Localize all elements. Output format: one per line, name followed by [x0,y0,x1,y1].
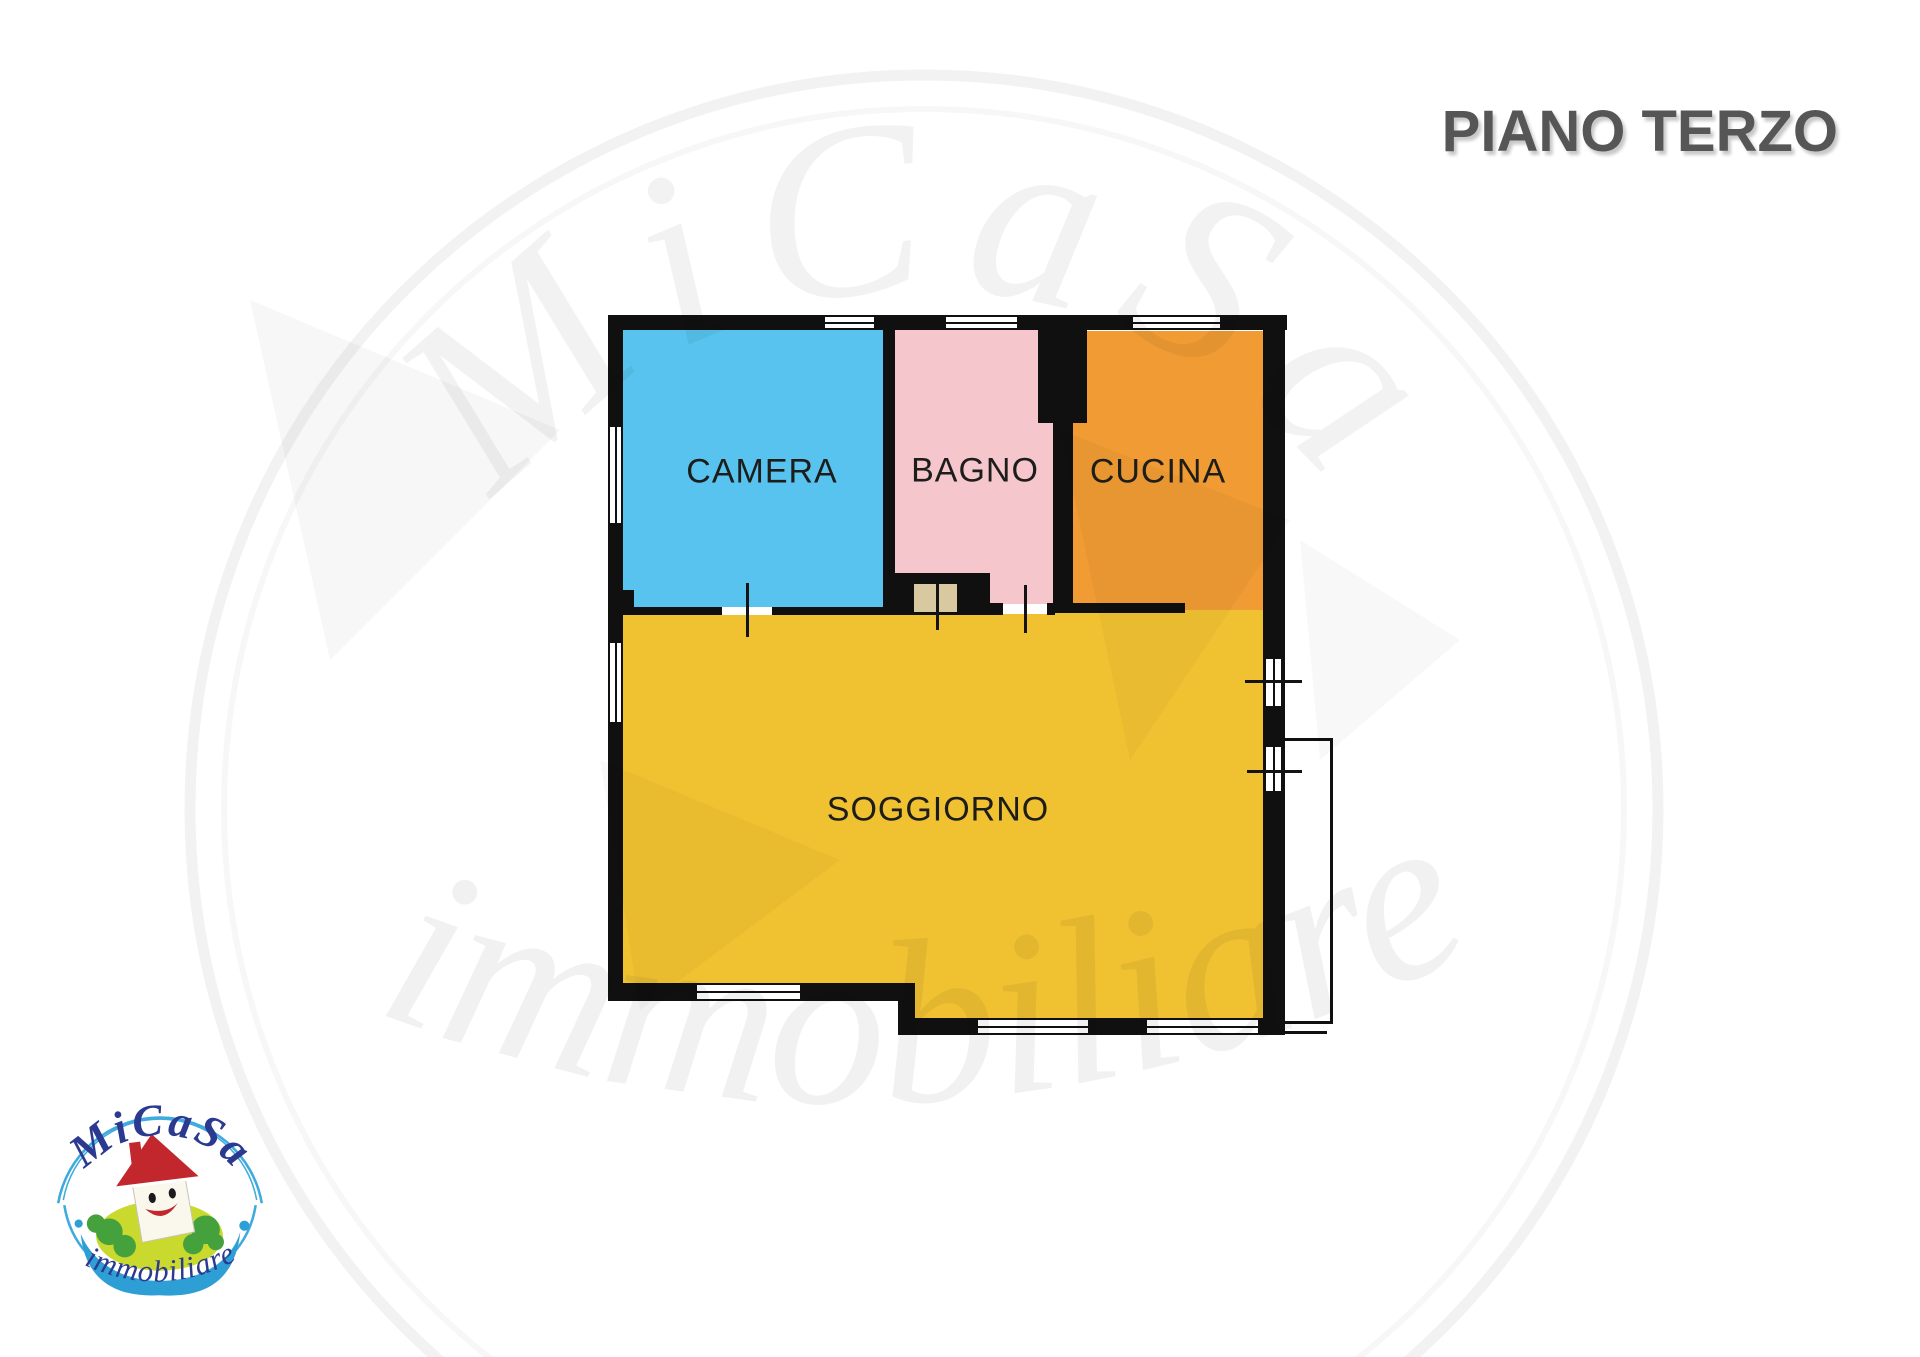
balcony [1281,738,1333,1024]
door-mark-camera-icon [746,583,749,637]
window-left-soggiorno-icon [608,643,623,722]
door-mark-bagno-icon [936,583,939,630]
wall-cucina-soggiorno [1055,603,1185,613]
room-label-camera: CAMERA [686,453,837,492]
terrace-line [1285,1031,1327,1034]
room-label-cucina: CUCINA [1090,453,1226,492]
door-mark-right-upper-icon [1245,680,1302,683]
agency-logo: MiCaSa immobiliare [50,1078,270,1318]
door-mark-right-lower-icon [1247,770,1302,773]
wall-bagno-ext-left [990,603,1003,615]
door-mark-bagno2-icon [1024,585,1027,633]
room-label-bagno: BAGNO [911,452,1039,491]
floor-plan-page: MiCaSa immobiliare CAMERA BAGNO CUCINA S… [0,0,1920,1357]
wall-corner-bump [623,590,634,615]
window-top-bagno-icon [946,315,1017,330]
window-top-camera-icon [825,315,874,330]
window-bottom-left-icon [697,983,800,1001]
wall-bagno-cucina-upper [1038,330,1087,423]
room-soggiorno-area-lower [912,983,1263,1018]
room-bagno-area [895,330,1038,372]
window-left-camera-icon [608,427,623,523]
window-bottom-mid-icon [978,1018,1088,1035]
room-cucina-area-lower [1073,423,1263,610]
logo-splash [75,1220,83,1228]
window-right-lower-icon [1264,745,1283,793]
floor-plan [0,0,1920,1357]
page-title: PIANO TERZO [1442,98,1838,165]
room-cucina-area [1087,331,1263,423]
logo-splash [239,1221,249,1231]
window-bottom-right-icon [1147,1018,1258,1035]
room-label-soggiorno: SOGGIORNO [827,791,1049,830]
wall-bagno-cucina-lower [1053,423,1073,603]
room-bagno-area-ext [990,573,1053,605]
wall-bagno-ext-right [1047,603,1055,615]
window-top-cucina-icon [1133,315,1220,330]
